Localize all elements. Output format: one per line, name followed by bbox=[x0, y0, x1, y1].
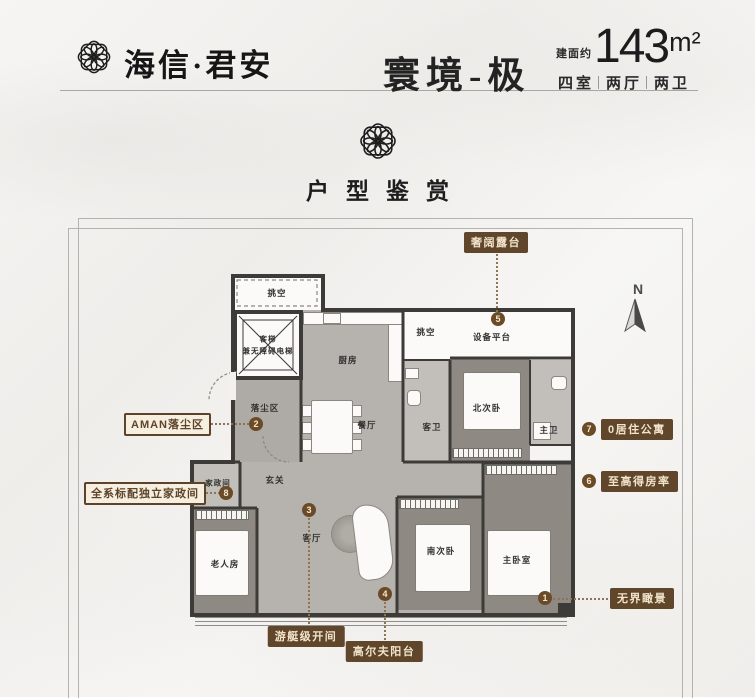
north-arrow-icon bbox=[621, 297, 649, 335]
label-equipment-platform: 设备平台 bbox=[473, 331, 511, 343]
label-guest-bath: 客卫 bbox=[422, 421, 441, 433]
label-master-bath: 主卫 bbox=[539, 424, 558, 436]
callout-ratio: 至高得房率 bbox=[601, 471, 678, 492]
label-elevator-2: 兼无障碍电梯 bbox=[243, 346, 294, 357]
marker-3: 3 bbox=[302, 503, 316, 517]
label-dining: 餐厅 bbox=[357, 419, 376, 431]
leader-terrace bbox=[496, 254, 498, 312]
label-foyer: 玄关 bbox=[265, 474, 284, 486]
floorplan-walls bbox=[185, 272, 577, 634]
marker-1: 1 bbox=[538, 591, 552, 605]
area-value: 143 bbox=[594, 27, 668, 68]
spec-baths: 两卫 bbox=[654, 72, 690, 93]
callout-view: 无界瞰景 bbox=[610, 588, 674, 609]
label-south-bedroom: 南次卧 bbox=[427, 545, 456, 557]
section-title: 户型鉴赏 bbox=[0, 172, 755, 206]
leader-view bbox=[553, 598, 608, 600]
unit-series-title: 寰境-极 bbox=[383, 45, 530, 99]
ornament-flower-icon bbox=[354, 117, 402, 165]
label-elder-room: 老人房 bbox=[211, 558, 240, 570]
label-north-bedroom: 北次卧 bbox=[473, 402, 502, 414]
callout-terrace: 奢阔露台 bbox=[464, 232, 528, 253]
spec-rooms: 四室 bbox=[558, 72, 594, 93]
callout-housekeeping: 全系标配独立家政间 bbox=[84, 482, 206, 505]
callout-apartment: 0居住公寓 bbox=[601, 419, 673, 440]
label-void-small: 挑空 bbox=[416, 326, 435, 338]
label-kitchen: 厨房 bbox=[338, 354, 357, 366]
area-info: 建面约 143 m² bbox=[556, 27, 701, 68]
area-prefix: 建面约 bbox=[556, 45, 592, 61]
label-void-top: 挑空 bbox=[267, 287, 286, 299]
leader-golf-balcony bbox=[384, 602, 386, 640]
marker-2: 2 bbox=[249, 417, 263, 431]
label-master-bedroom: 主卧室 bbox=[503, 554, 532, 566]
label-elevator-1: 客梯 bbox=[260, 334, 277, 345]
brand-name: 海信·君安 bbox=[124, 40, 273, 85]
marker-7: 7 bbox=[582, 422, 596, 436]
poster-page: 海信·君安 寰境-极 建面约 143 m² 四室 两厅 两卫 bbox=[0, 0, 755, 697]
brand-flower-icon bbox=[72, 35, 116, 79]
spec-separator bbox=[646, 76, 647, 89]
callout-yacht-bay: 游艇级开间 bbox=[268, 626, 345, 647]
floorplan: 挑空 客梯 兼无障碍电梯 厨房 挑空 设备平台 落尘区 餐厅 客卫 北次卧 主卫… bbox=[185, 272, 577, 634]
marker-6: 6 bbox=[582, 474, 596, 488]
label-living: 客厅 bbox=[302, 532, 321, 544]
callout-aman: AMAN落尘区 bbox=[124, 413, 211, 436]
unit-spec: 四室 两厅 两卫 bbox=[558, 72, 690, 93]
marker-8: 8 bbox=[219, 486, 233, 500]
marker-5: 5 bbox=[491, 312, 505, 326]
marker-4: 4 bbox=[378, 587, 392, 601]
leader-yacht-bay bbox=[308, 518, 310, 624]
label-dust-area: 落尘区 bbox=[251, 402, 280, 414]
area-unit: m² bbox=[669, 29, 700, 56]
compass-label: N bbox=[633, 281, 643, 297]
spec-halls: 两厅 bbox=[606, 72, 642, 93]
spec-separator bbox=[598, 76, 599, 89]
callout-golf-balcony: 高尔夫阳台 bbox=[346, 641, 423, 662]
